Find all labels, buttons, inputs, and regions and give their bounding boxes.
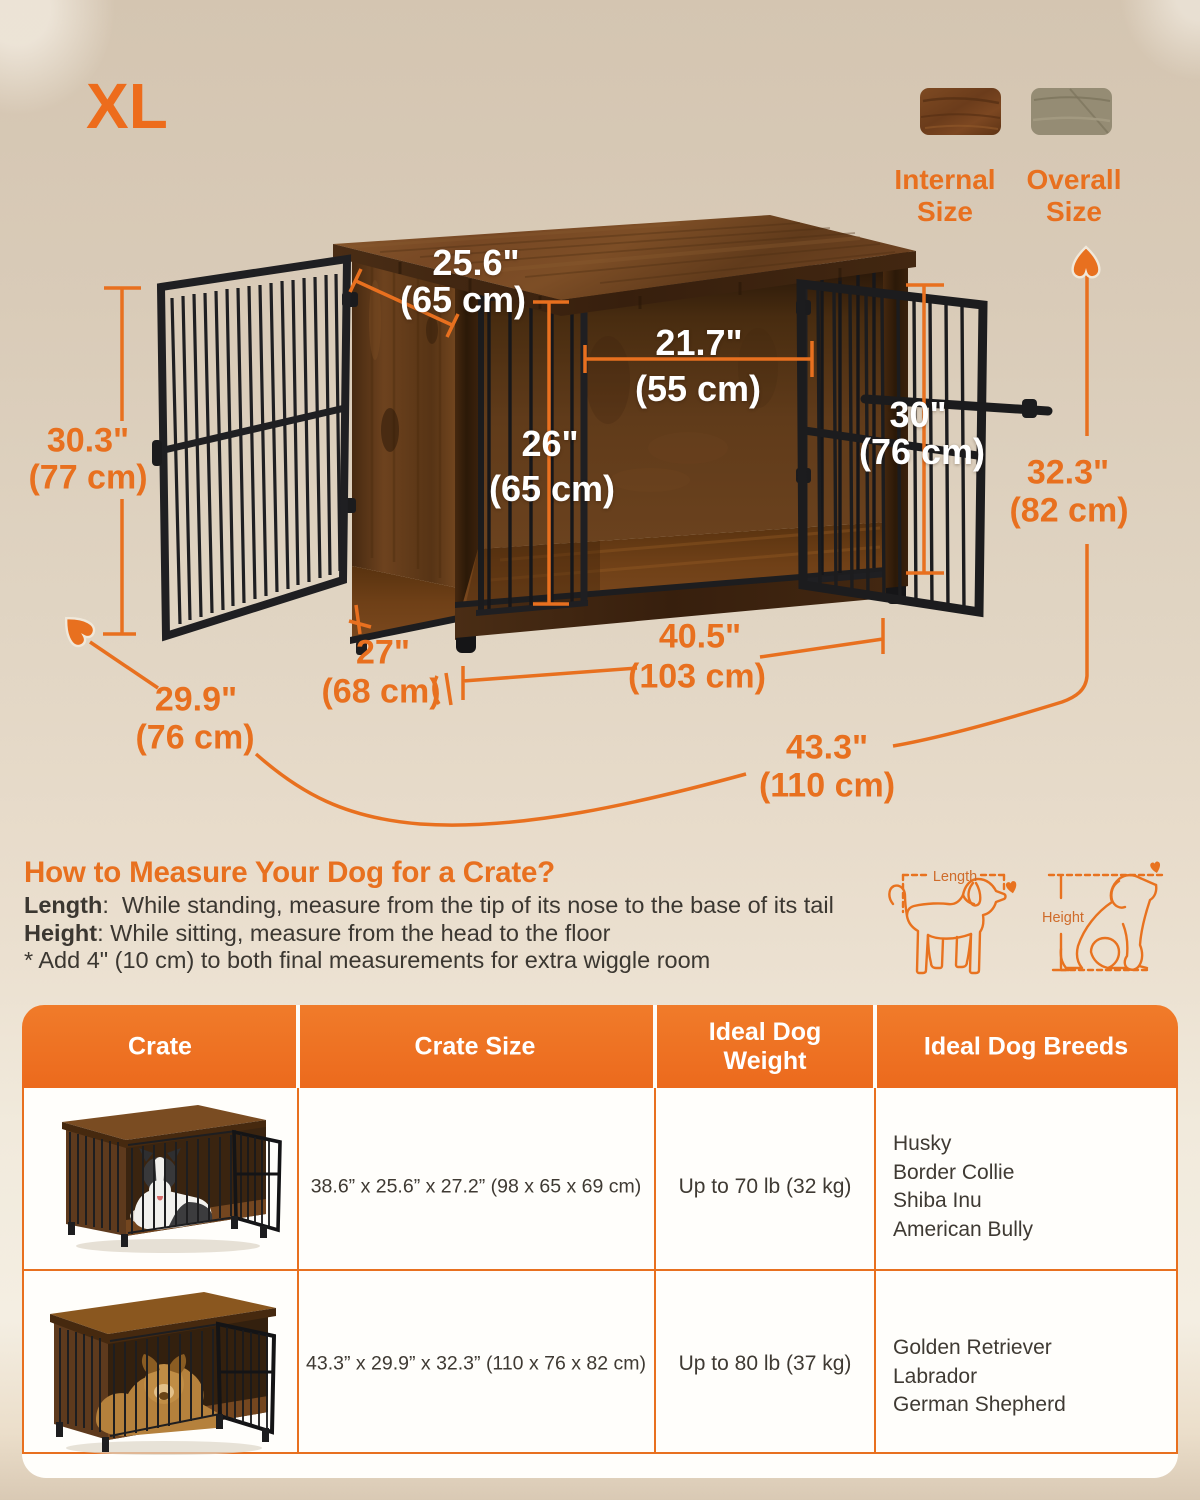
svg-text:Length: Length xyxy=(933,869,977,885)
svg-text:Height: Height xyxy=(1042,910,1084,926)
